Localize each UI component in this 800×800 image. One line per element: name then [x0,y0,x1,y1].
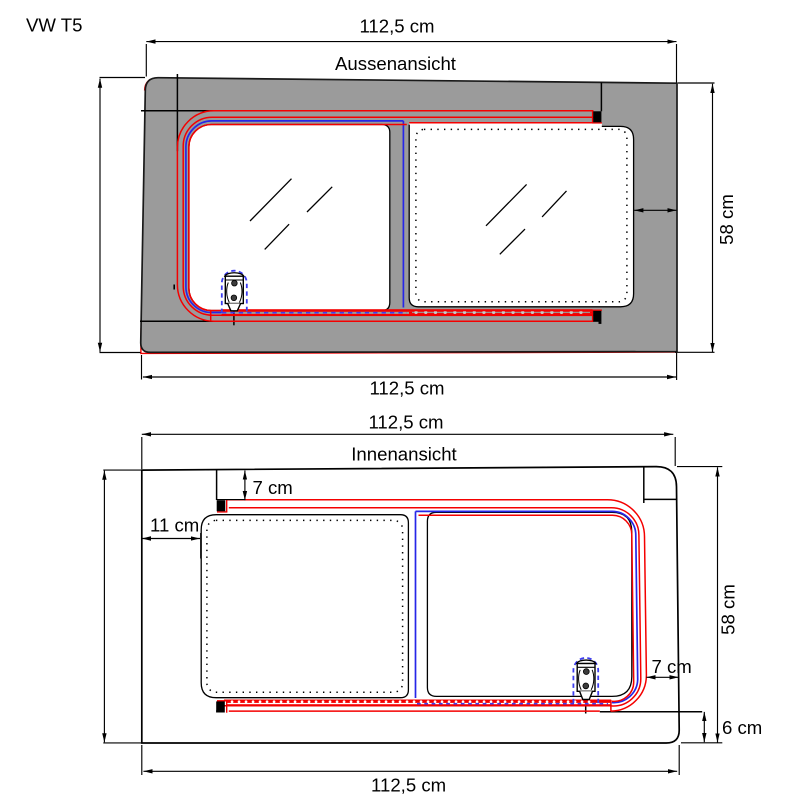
svg-text:7 cm: 7 cm [253,477,293,498]
svg-text:Aussenansicht: Aussenansicht [335,53,457,74]
svg-text:6 cm: 6 cm [722,717,762,738]
svg-text:58 cm: 58 cm [717,584,738,635]
svg-text:112,5 cm: 112,5 cm [371,775,446,796]
svg-text:7 cm: 7 cm [652,656,692,677]
svg-text:112,5 cm: 112,5 cm [359,16,434,37]
svg-text:112,5 cm: 112,5 cm [369,378,444,399]
svg-text:11 cm: 11 cm [150,515,199,536]
svg-text:VW T5: VW T5 [26,15,82,36]
svg-text:58 cm: 58 cm [716,194,737,245]
svg-text:112,5 cm: 112,5 cm [368,412,443,433]
svg-text:Innenansicht: Innenansicht [351,444,457,465]
